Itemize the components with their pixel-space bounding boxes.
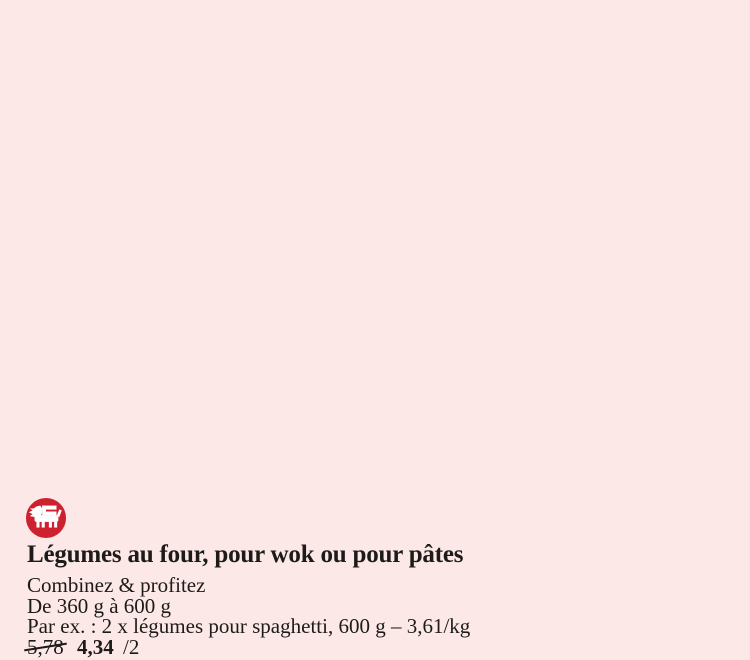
old-price: 5,78: [27, 637, 64, 658]
new-price: 4,34: [77, 635, 114, 659]
price-unit: /2: [123, 635, 139, 659]
promo-line: Combinez & profitez: [27, 575, 470, 596]
weight-line: De 360 g à 600 g: [27, 596, 470, 617]
promo-card[interactable]: Légumes au four, pour wok ou pour pâtes …: [0, 0, 750, 660]
product-title: Légumes au four, pour wok ou pour pâtes: [27, 541, 463, 569]
delhaize-lion-icon: [25, 497, 67, 539]
product-details: Combinez & profitez De 360 g à 600 g Par…: [27, 575, 470, 657]
delhaize-logo: [25, 497, 67, 539]
example-line: Par ex. : 2 x légumes pour spaghetti, 60…: [27, 616, 470, 637]
price-line: 5,78 4,34 /2: [27, 637, 470, 658]
